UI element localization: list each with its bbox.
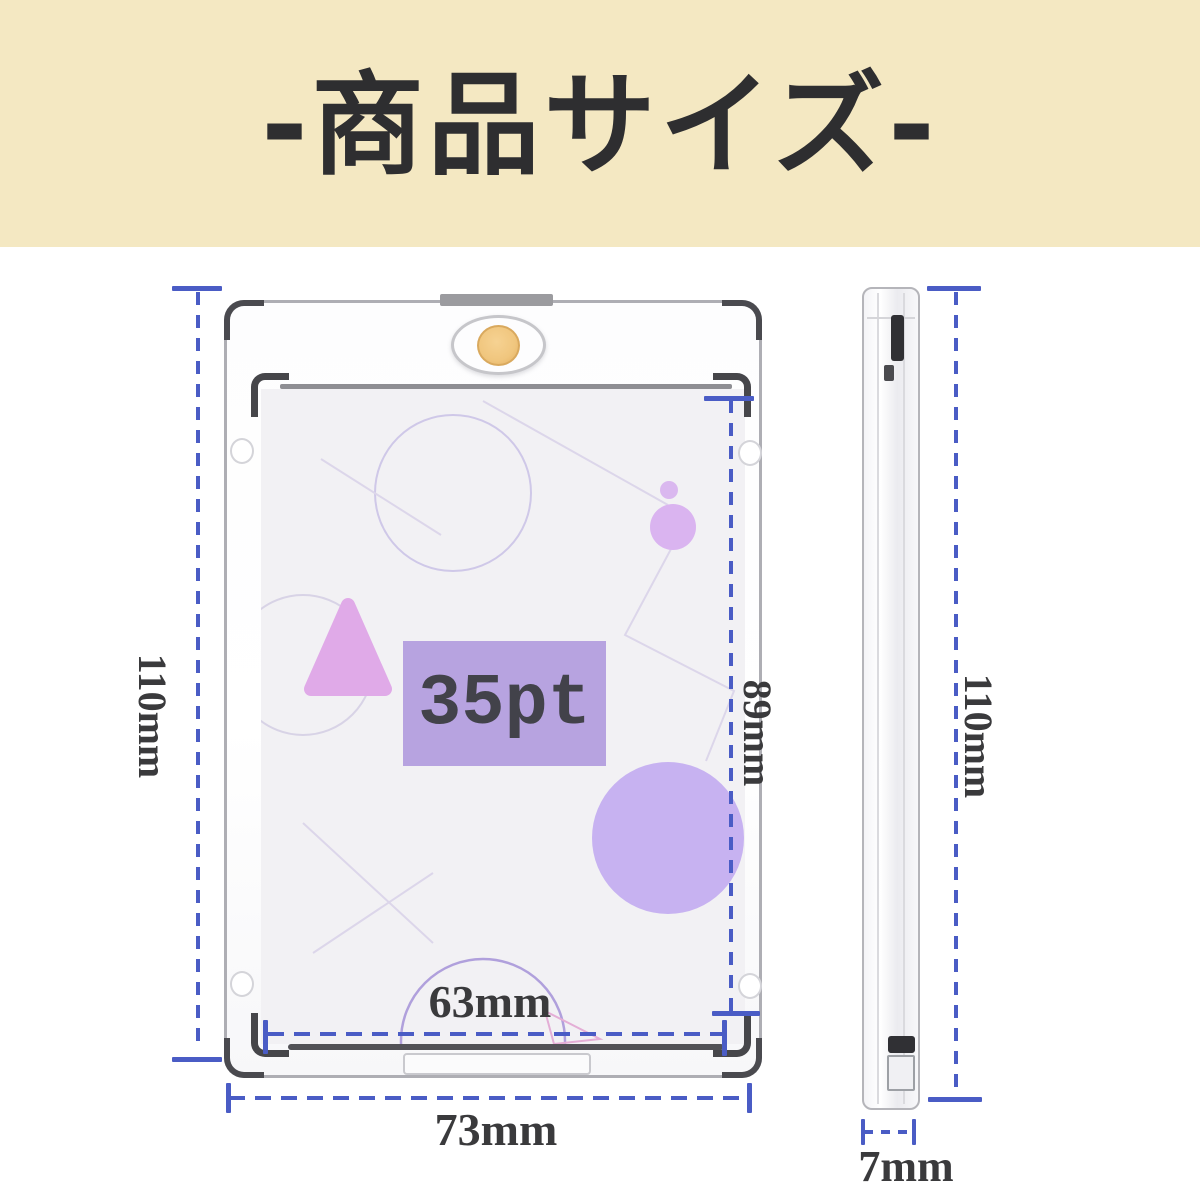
dim-line-side-thickness [864, 1130, 916, 1134]
slab-clip-top [884, 365, 894, 381]
dim-tick [928, 1097, 982, 1102]
dim-line-inner-width [268, 1032, 723, 1036]
holder-corner-accent [722, 300, 762, 340]
dim-tick [704, 396, 754, 401]
dim-line-inner-height [729, 400, 733, 1015]
thickness-badge: 35pt [403, 641, 606, 766]
dim-tick [226, 1083, 231, 1113]
dim-label-inner-height: 89mm [735, 648, 779, 818]
decor-line [313, 873, 433, 953]
slab-clip-bottom [887, 1055, 915, 1091]
decor-line [303, 823, 433, 943]
dim-tick [172, 286, 222, 291]
magnet-button [451, 315, 546, 375]
dim-label-inner-width: 63mm [400, 977, 580, 1027]
slot-corner-bracket [251, 373, 289, 417]
holder-side-notch [230, 971, 254, 997]
decor-triangle-pink [311, 605, 385, 689]
dim-label-outer-height: 110mm [130, 631, 174, 801]
dim-tick [263, 1020, 268, 1054]
card-slot-area: 35pt [261, 389, 745, 1044]
card-holder-front-view: 35pt [224, 300, 762, 1078]
holder-side-notch [738, 973, 762, 999]
slab-magnet-bottom [888, 1036, 915, 1053]
dim-tick [722, 1020, 727, 1056]
dim-label-side-thickness: 7mm [816, 1143, 996, 1191]
dim-line-outer-height [196, 292, 200, 1048]
holder-top-tab [440, 294, 553, 306]
holder-side-notch [230, 438, 254, 464]
page-title: -商品サイズ- [0, 0, 1200, 247]
header-banner: -商品サイズ- [0, 0, 1200, 247]
decor-outline-circle-top [375, 415, 531, 571]
dim-tick [712, 1011, 760, 1016]
dim-label-side-height: 110mm [956, 651, 1000, 821]
slab-magnet-top [891, 315, 904, 361]
thickness-badge-label: 35pt [418, 663, 591, 745]
decor-dot-small [660, 481, 678, 499]
decor-line [625, 549, 734, 761]
gold-magnet-disc [477, 325, 520, 366]
product-size-infographic: -商品サイズ- [0, 0, 1200, 1200]
dim-line-outer-width [229, 1096, 751, 1100]
dim-tick [747, 1083, 752, 1113]
holder-bottom-tab [403, 1053, 591, 1075]
card-holder-side-view [862, 287, 920, 1110]
dim-label-outer-width: 73mm [406, 1105, 586, 1155]
decor-circle-large [592, 762, 744, 914]
holder-corner-accent [224, 300, 264, 340]
holder-side-notch [738, 440, 762, 466]
diagram-stage: 35pt 110mm 89mm 63mm [0, 247, 1200, 1200]
card-slot-bottom-edge [288, 1044, 724, 1050]
decor-line [483, 401, 668, 505]
slab-edge-line [877, 293, 879, 1104]
decor-circle-medium [650, 504, 696, 550]
dim-tick [172, 1057, 222, 1062]
slab-edge-line [903, 293, 905, 1104]
dim-tick [927, 286, 981, 291]
